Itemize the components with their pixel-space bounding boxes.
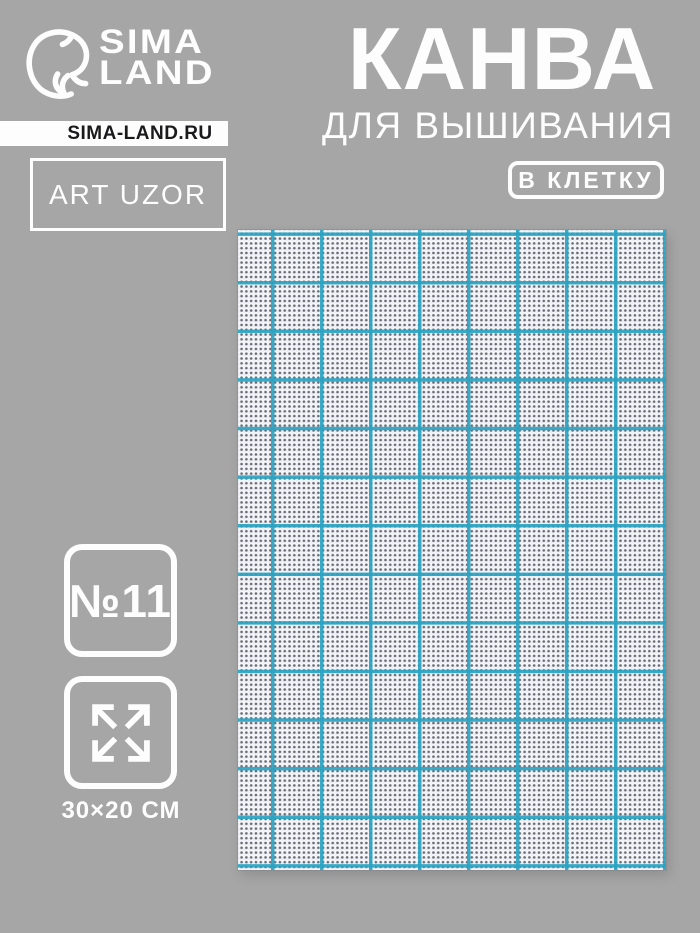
- website-band: SIMA-LAND.RU: [0, 121, 228, 146]
- brand-logo-line2: LAND: [99, 54, 215, 92]
- dimensions-box: [64, 676, 177, 789]
- grid-type-badge: В КЛЕТКУ: [508, 161, 664, 199]
- canvas-count-label: №11: [69, 574, 172, 628]
- brand-logo-text: SIMA LAND: [99, 27, 215, 89]
- website-label: SIMA-LAND.RU: [67, 123, 212, 145]
- product-title: КАНВА: [330, 15, 674, 103]
- trademark-box: ART UZOR: [30, 158, 226, 231]
- product-card: SIMA LAND SIMA-LAND.RU ART UZOR КАНВА ДЛ…: [0, 0, 700, 933]
- trademark-label: ART UZOR: [49, 179, 207, 211]
- size-label: 30×20 СМ: [34, 797, 208, 825]
- expand-arrows-icon: [85, 697, 157, 769]
- sima-land-dolphin-icon: [24, 25, 104, 107]
- canvas-count-box: №11: [64, 544, 177, 657]
- grid-type-badge-label: В КЛЕТКУ: [518, 167, 654, 194]
- product-subtitle: ДЛЯ ВЫШИВАНИЯ: [322, 106, 674, 146]
- canvas-fabric-photo: [238, 230, 666, 870]
